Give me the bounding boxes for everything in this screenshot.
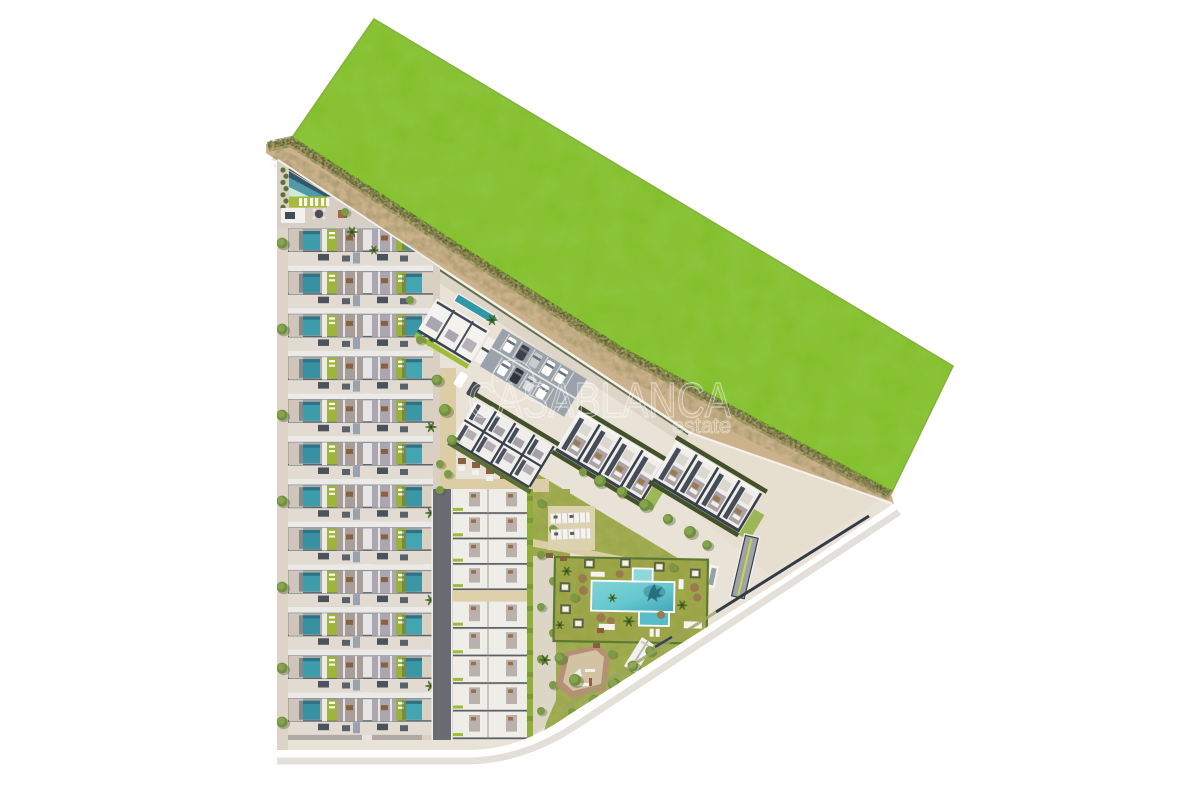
svg-text:estate: estate xyxy=(672,413,731,438)
